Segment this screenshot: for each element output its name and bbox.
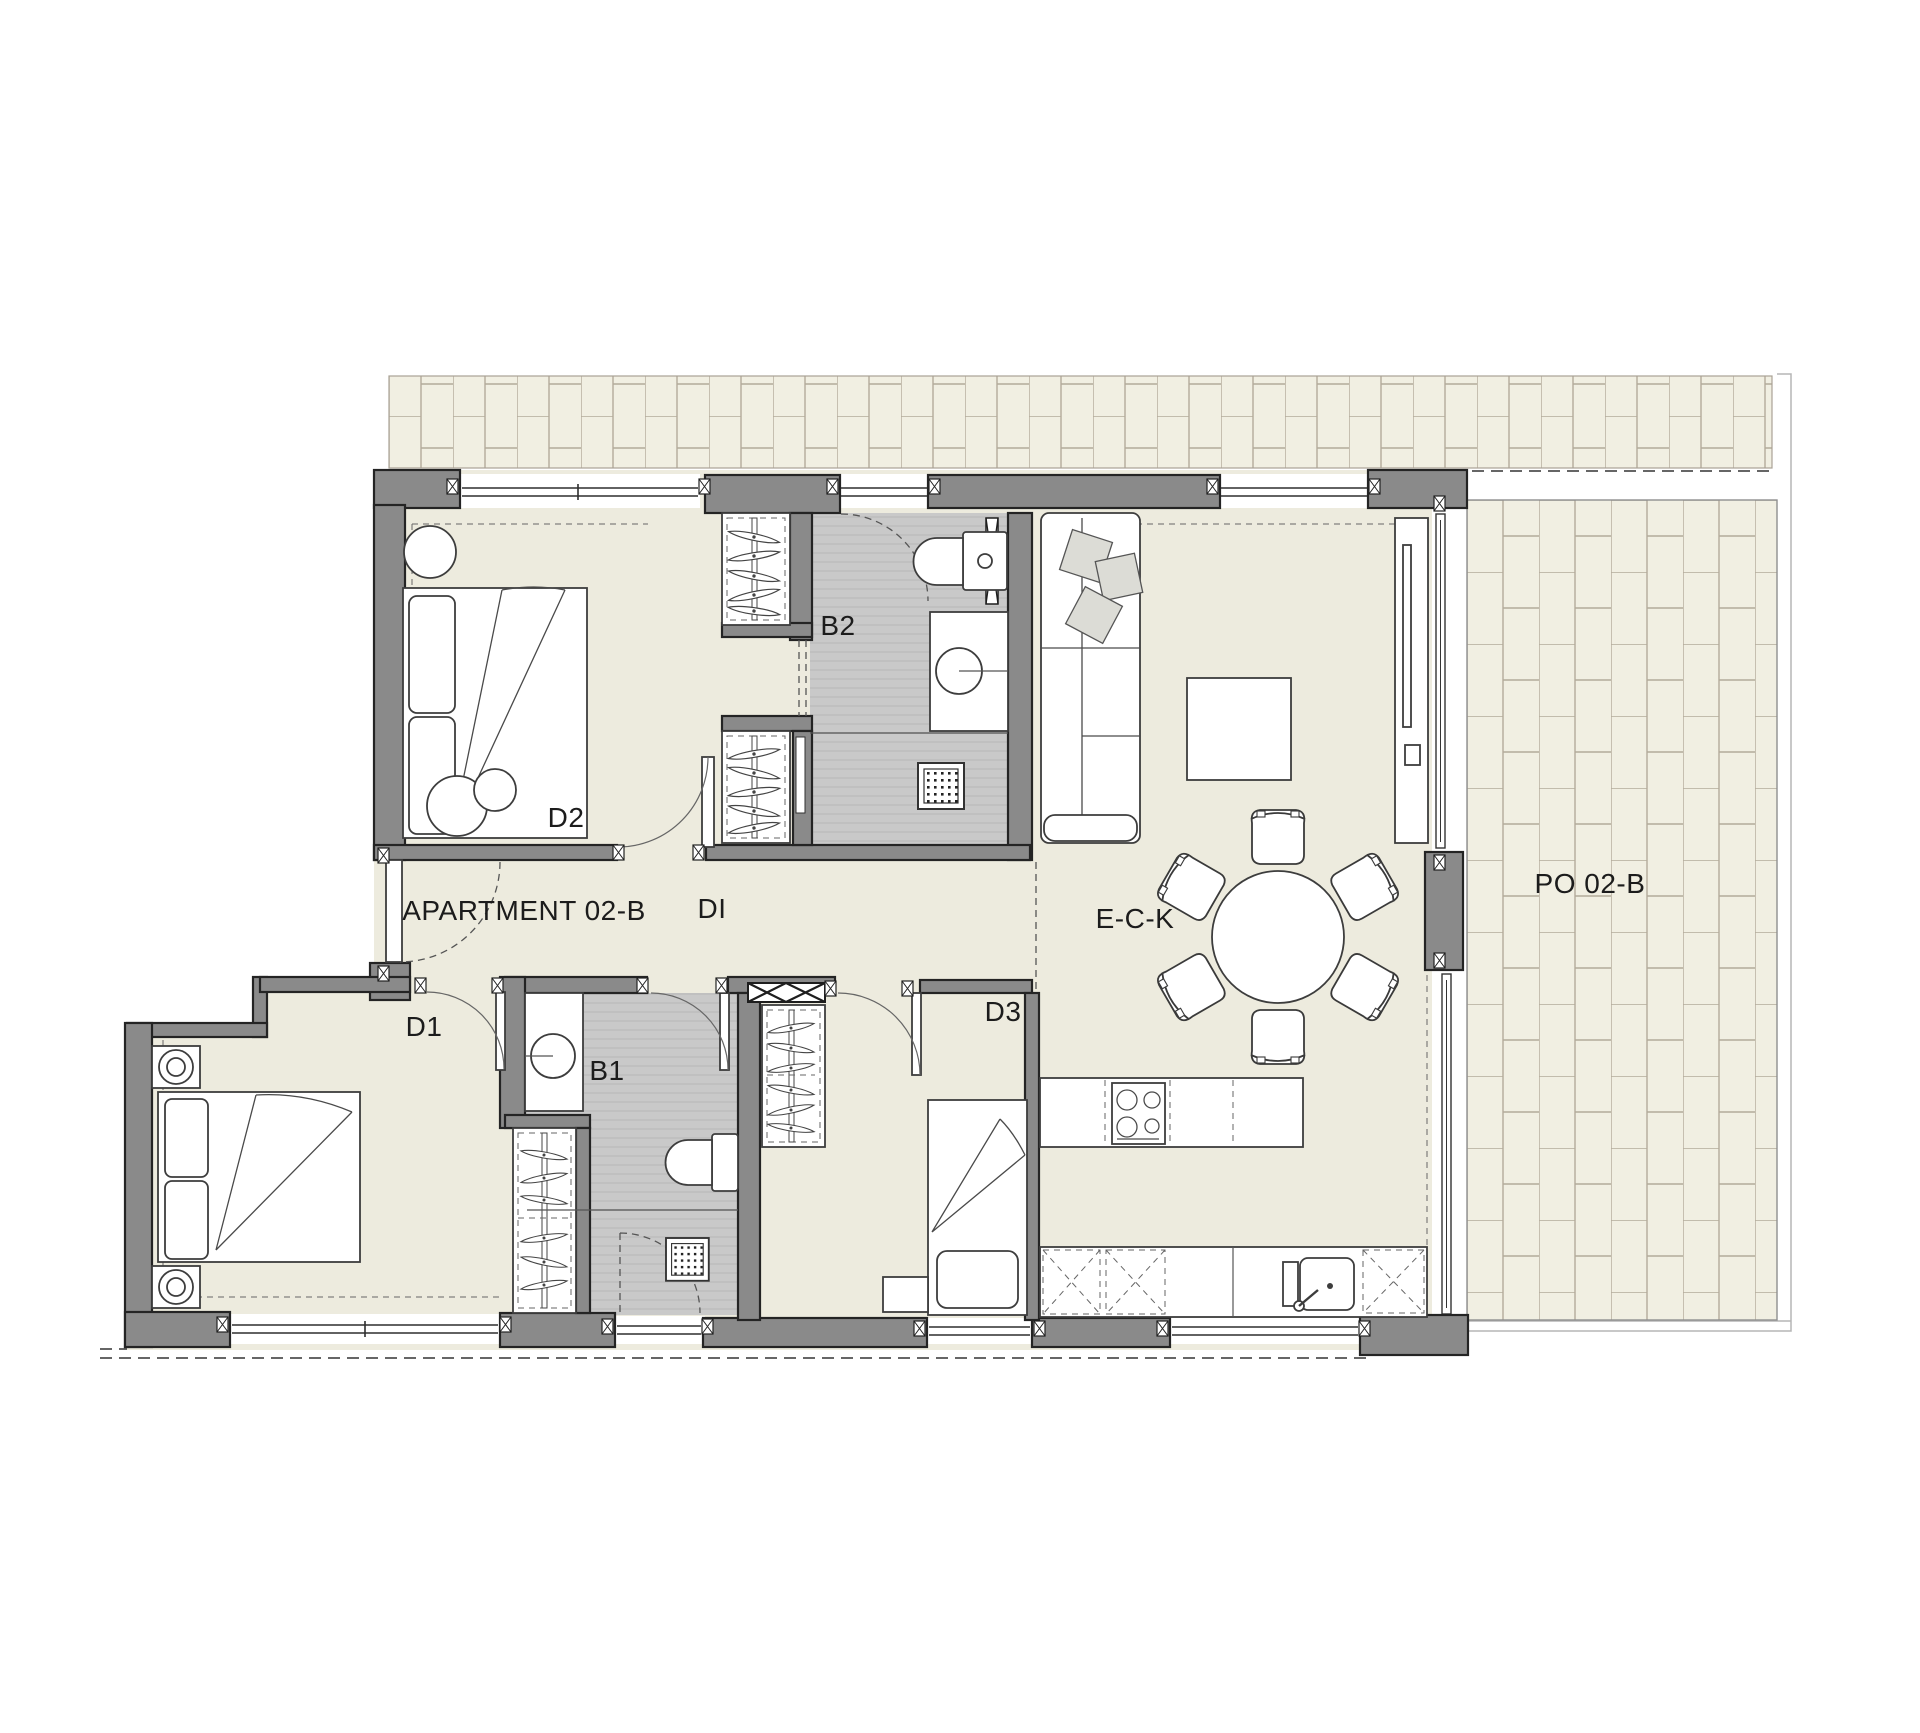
room-label-bathroom2: B2 bbox=[820, 610, 855, 642]
floor-plan-page: APARTMENT 02-B DI D2 D1 B1 B2 D3 E-C-K P… bbox=[0, 0, 1920, 1733]
coffee-table bbox=[1187, 678, 1291, 780]
kitchen-counter bbox=[1040, 1247, 1427, 1317]
window-bathroom1 bbox=[613, 1316, 705, 1344]
window-living bbox=[1218, 474, 1370, 508]
ventilation-shaft-d3 bbox=[748, 983, 825, 1002]
room-label-bedroom1: D1 bbox=[406, 1011, 443, 1043]
window-bedroom1 bbox=[228, 1314, 502, 1344]
window-bathroom2 bbox=[838, 474, 930, 508]
roof-overhang-dashed-bottom bbox=[100, 1349, 1370, 1358]
window-bedroom3 bbox=[925, 1318, 1034, 1344]
room-label-bedroom3: D3 bbox=[985, 996, 1022, 1028]
top-terrace-tiles bbox=[389, 376, 1772, 468]
window-bedroom2 bbox=[458, 474, 700, 508]
sofa bbox=[1041, 513, 1143, 843]
room-label-living: E-C-K bbox=[1096, 903, 1175, 935]
room-label-hallway: DI bbox=[698, 893, 727, 925]
closet-bedroom1 bbox=[513, 1128, 576, 1313]
porch-terrace-tiles bbox=[1467, 500, 1777, 1320]
closet-bedroom3 bbox=[762, 1005, 825, 1147]
closet-bedroom2-b bbox=[722, 731, 790, 843]
room-label-bathroom1: B1 bbox=[589, 1055, 624, 1087]
floor-plan-drawing bbox=[0, 0, 1920, 1733]
room-label-porch: PO 02-B bbox=[1535, 868, 1646, 900]
tv-unit bbox=[1395, 518, 1428, 843]
apartment-title: APARTMENT 02-B bbox=[402, 895, 646, 927]
closet-bedroom2-a bbox=[722, 513, 790, 625]
kitchen-island bbox=[1040, 1078, 1303, 1147]
window-kitchen bbox=[1168, 1318, 1362, 1344]
room-label-bedroom2: D2 bbox=[548, 802, 585, 834]
